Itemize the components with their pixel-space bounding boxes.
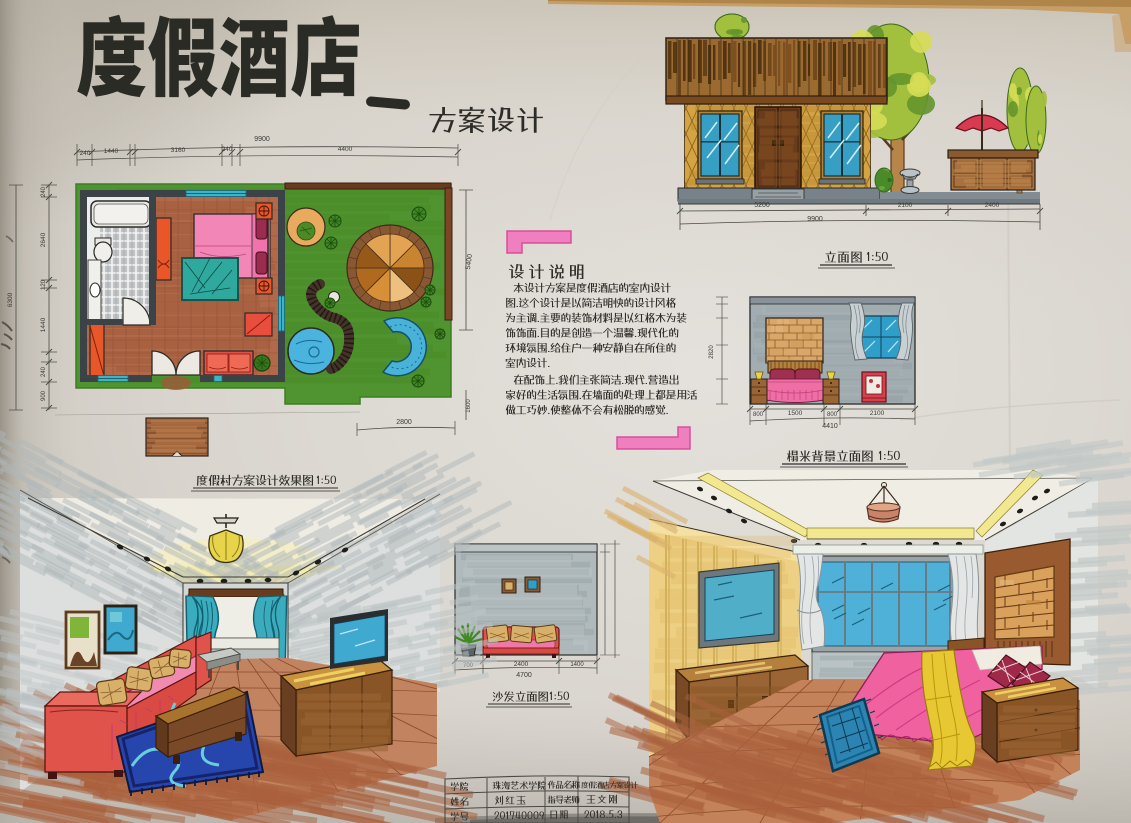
svg-text:2800: 2800 [396, 419, 412, 426]
svg-text:9900: 9900 [254, 136, 270, 143]
svg-text:240: 240 [41, 186, 47, 197]
svg-text:240: 240 [222, 146, 233, 153]
svg-text:1500: 1500 [788, 410, 803, 417]
svg-text:2100: 2100 [870, 410, 885, 417]
svg-text:240: 240 [80, 150, 91, 157]
svg-text:1400: 1400 [570, 662, 584, 668]
svg-text:1440: 1440 [40, 317, 47, 332]
svg-text:1600: 1600 [466, 399, 472, 413]
svg-text:800: 800 [827, 412, 838, 418]
svg-text:2640: 2640 [40, 232, 47, 247]
svg-text:2100: 2100 [898, 202, 913, 209]
svg-text:2400: 2400 [985, 202, 1000, 209]
svg-text:120: 120 [41, 279, 47, 290]
svg-text:900: 900 [41, 390, 47, 401]
svg-text:4700: 4700 [516, 672, 532, 679]
svg-text:800: 800 [753, 412, 764, 418]
svg-text:4400: 4400 [338, 146, 353, 153]
svg-text:4410: 4410 [822, 423, 838, 430]
svg-text:240: 240 [41, 366, 47, 377]
svg-text:3160: 3160 [171, 147, 186, 154]
svg-text:2820: 2820 [709, 345, 715, 359]
svg-text:5200: 5200 [754, 202, 770, 209]
svg-text:9900: 9900 [807, 216, 823, 223]
svg-text:2400: 2400 [514, 661, 529, 668]
svg-text:1440: 1440 [104, 148, 119, 155]
svg-text:6300: 6300 [7, 292, 14, 307]
